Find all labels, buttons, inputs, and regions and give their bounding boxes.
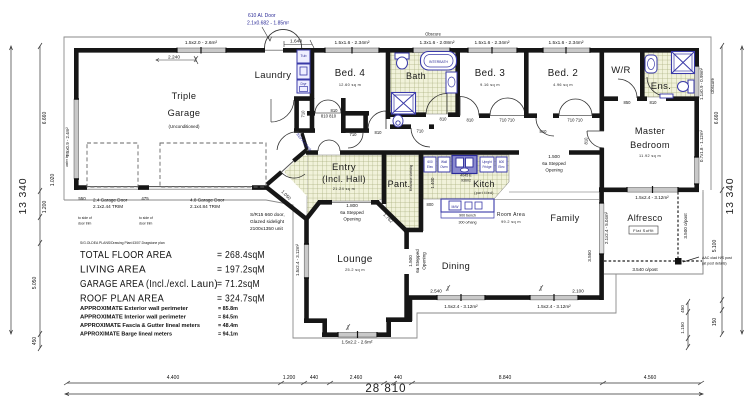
svg-text:Room Area: Room Area — [497, 212, 525, 218]
svg-text:150: 150 — [712, 318, 718, 327]
svg-text:TOTAL FLOOR AREA: TOTAL FLOOR AREA — [80, 250, 172, 261]
svg-text:2100x1350 unit: 2100x1350 unit — [250, 226, 283, 232]
svg-text:810 810: 810 810 — [321, 114, 337, 119]
svg-text:ROOF PLAN AREA: ROOF PLAN AREA — [80, 294, 164, 305]
svg-text:Tub: Tub — [300, 54, 306, 58]
svg-text:2.1x2.4 - 5.04m²: 2.1x2.4 - 5.04m² — [604, 211, 609, 244]
svg-text:GARAGE AREA: GARAGE AREA — [80, 279, 144, 290]
svg-text:1.5x1.6 - 2.34m²: 1.5x1.6 - 2.34m² — [335, 40, 370, 46]
svg-text:3.540 o/post: 3.540 o/post — [632, 267, 658, 272]
svg-text:M/W: M/W — [452, 205, 460, 209]
svg-text:Bed. 4: Bed. 4 — [335, 68, 366, 79]
svg-text:1.640: 1.640 — [290, 39, 302, 45]
svg-text:810: 810 — [375, 130, 383, 135]
svg-text:Laun): Laun) — [191, 279, 218, 290]
svg-text:(at post details): (at post details) — [702, 262, 727, 266]
svg-text:= 324.7sqM: = 324.7sqM — [217, 294, 265, 305]
svg-text:1.3x1.6 - 2.08m²: 1.3x1.6 - 2.08m² — [420, 40, 455, 46]
svg-text:2.540: 2.540 — [430, 289, 442, 294]
svg-text:440: 440 — [310, 375, 319, 381]
svg-text:2.4 Garage Door: 2.4 Garage Door — [93, 198, 128, 203]
svg-text:2.100: 2.100 — [572, 289, 584, 294]
svg-text:710: 710 — [417, 129, 425, 134]
svg-text:4.96 sq m: 4.96 sq m — [553, 83, 573, 87]
svg-text:13 340: 13 340 — [17, 178, 29, 215]
svg-text:4.560: 4.560 — [644, 375, 657, 381]
svg-text:93602: 93602 — [461, 179, 471, 183]
svg-text:9.16 sq m: 9.16 sq m — [480, 83, 500, 87]
svg-text:Glazed sidelight: Glazed sidelight — [250, 219, 285, 225]
svg-text:800: 800 — [427, 202, 435, 207]
svg-text:1.500: 1.500 — [408, 255, 413, 267]
svg-text:Obscure: Obscure — [710, 77, 715, 93]
svg-text:810: 810 — [467, 118, 475, 123]
svg-text:Garage: Garage — [168, 108, 201, 118]
svg-text:810: 810 — [650, 100, 658, 105]
svg-text:2.1x0.682 - 1.85m²: 2.1x0.682 - 1.85m² — [247, 21, 289, 27]
svg-text:APPROXIMATE Interior wall peri: APPROXIMATE Interior wall perimeter — [80, 315, 187, 321]
svg-text:to side of: to side of — [139, 216, 153, 220]
svg-text:900 bench: 900 bench — [459, 214, 476, 218]
svg-text:Family: Family — [550, 213, 579, 223]
svg-text:1.5x2.4 - 3.12m²: 1.5x2.4 - 3.12m² — [635, 195, 669, 200]
svg-text:600: 600 — [427, 160, 433, 164]
svg-text:440: 440 — [394, 375, 403, 381]
svg-text:(Incl./excl.: (Incl./excl. — [146, 279, 189, 290]
svg-text:Flat Soffit: Flat Soffit — [633, 228, 654, 233]
svg-text:LIVING AREA: LIVING AREA — [80, 265, 146, 276]
svg-text:550: 550 — [78, 196, 86, 201]
svg-text:Lounge: Lounge — [337, 254, 373, 265]
svg-text:2.1x2.44 TRIM: 2.1x2.44 TRIM — [93, 204, 123, 209]
svg-text:610 Al. Door: 610 Al. Door — [248, 13, 276, 19]
svg-text:Entry: Entry — [332, 162, 356, 173]
svg-text:Obscure: Obscure — [425, 32, 441, 37]
svg-text:2.240: 2.240 — [168, 55, 180, 61]
svg-text:S/G.OLDEA PLANS/Drawing Plan/4: S/G.OLDEA PLANS/Drawing Plan/43/07.Drags… — [80, 241, 165, 245]
svg-text:1.5x1.6 - 2.34m²: 1.5x1.6 - 2.34m² — [475, 40, 510, 46]
svg-text:= 84.5m: = 84.5m — [218, 315, 238, 321]
svg-text:= 71.2sqM: = 71.2sqM — [217, 279, 260, 290]
svg-text:Opening: Opening — [422, 252, 427, 270]
svg-text:2.1x4.84 TRIM: 2.1x4.84 TRIM — [190, 204, 220, 209]
svg-text:(part tiled): (part tiled) — [474, 191, 493, 195]
svg-text:8.840: 8.840 — [499, 375, 512, 381]
svg-text:13 340: 13 340 — [724, 178, 736, 215]
svg-text:Bed. 3: Bed. 3 — [475, 68, 506, 79]
svg-text:710 710: 710 710 — [567, 118, 583, 123]
svg-text:5.050: 5.050 — [32, 277, 38, 290]
svg-text:6.660: 6.660 — [714, 112, 720, 125]
svg-text:Pant.: Pant. — [388, 179, 411, 189]
svg-text:1.5x0.9 - 2.4m²: 1.5x0.9 - 2.4m² — [65, 127, 70, 157]
svg-text:= 197.2sqM: = 197.2sqM — [217, 265, 265, 276]
svg-text:1.5x2.2 - 2.6m²: 1.5x2.2 - 2.6m² — [342, 340, 373, 345]
svg-text:710: 710 — [301, 110, 306, 118]
svg-text:= 85.8m: = 85.8m — [218, 306, 238, 312]
svg-text:3.500 o/post: 3.500 o/post — [683, 213, 688, 239]
svg-text:1.020: 1.020 — [50, 174, 56, 187]
svg-text:28 810: 28 810 — [365, 383, 406, 395]
svg-text:Bedroom: Bedroom — [630, 140, 670, 150]
svg-text:710 710: 710 710 — [499, 118, 515, 123]
svg-text:1.5x1.6 - 2.34m²: 1.5x1.6 - 2.34m² — [549, 40, 584, 46]
svg-text:12.60 sq m: 12.60 sq m — [339, 83, 361, 87]
svg-text:4.8 Garage Door: 4.8 Garage Door — [190, 198, 225, 203]
svg-text:INTERBATH: INTERBATH — [429, 60, 449, 64]
svg-text:Master: Master — [635, 126, 665, 136]
svg-text:(Unconditioned): (Unconditioned) — [169, 124, 201, 129]
svg-text:850: 850 — [624, 100, 632, 105]
svg-text:APPROXIMATE Exterior wall peri: APPROXIMATE Exterior wall perimeter — [80, 306, 189, 312]
svg-text:300 o/hang: 300 o/hang — [459, 221, 477, 225]
svg-text:710: 710 — [350, 132, 358, 137]
svg-text:Opening: Opening — [545, 168, 563, 173]
svg-text:(Incl. Hall): (Incl. Hall) — [322, 174, 366, 184]
svg-text:0.7x1.8 - 1.12m²: 0.7x1.8 - 1.12m² — [699, 129, 704, 162]
svg-text:4045 E: 4045 E — [460, 174, 472, 178]
svg-text:6a Stepped: 6a Stepped — [542, 161, 566, 166]
svg-text:11.92 sq m: 11.92 sq m — [639, 154, 661, 158]
svg-text:5.100: 5.100 — [712, 240, 718, 253]
svg-text:Elec: Elec — [427, 165, 434, 169]
svg-text:Triple: Triple — [172, 91, 197, 101]
svg-text:475: 475 — [141, 196, 149, 201]
svg-text:6a Stepped: 6a Stepped — [340, 210, 364, 215]
svg-text:Bath: Bath — [406, 71, 426, 81]
svg-text:810: 810 — [540, 129, 548, 134]
svg-text:Wall: Wall — [441, 160, 447, 164]
svg-text:Opening: Opening — [343, 217, 361, 222]
svg-text:Kitch: Kitch — [473, 179, 495, 189]
svg-text:to side of: to side of — [78, 216, 92, 220]
svg-text:= 268.4sqM: = 268.4sqM — [217, 250, 265, 261]
svg-text:Uprght: Uprght — [482, 160, 492, 164]
svg-text:1.200: 1.200 — [283, 375, 296, 381]
svg-text:Melamine shelving: Melamine shelving — [409, 165, 413, 192]
svg-text:1.5x2.0 - 2.6m²: 1.5x2.0 - 2.6m² — [185, 40, 218, 46]
svg-text:810: 810 — [440, 117, 448, 122]
svg-text:Dining: Dining — [442, 261, 470, 271]
svg-text:1.400: 1.400 — [430, 177, 435, 189]
svg-text:6a Stepped: 6a Stepped — [415, 249, 420, 273]
svg-text:99.2 sq m: 99.2 sq m — [501, 220, 521, 224]
svg-text:Dryr: Dryr — [300, 82, 307, 86]
svg-text:Fridge: Fridge — [482, 165, 491, 169]
svg-text:= 94.1m: = 94.1m — [218, 332, 238, 338]
svg-text:1.800: 1.800 — [346, 203, 358, 208]
svg-text:450: 450 — [680, 305, 685, 313]
svg-text:1.500: 1.500 — [548, 154, 560, 159]
svg-text:3.550: 3.550 — [587, 250, 592, 262]
svg-text:water box: water box — [65, 153, 69, 167]
svg-text:810: 810 — [584, 137, 589, 145]
svg-text:AAC clad H/S post: AAC clad H/S post — [702, 256, 732, 260]
svg-text:Oven: Oven — [440, 165, 448, 169]
svg-text:APPROXIMATE Fascia & Gutter li: APPROXIMATE Fascia & Gutter lineal meter… — [80, 323, 200, 329]
svg-text:APPROXIMATE Barge lineal meter: APPROXIMATE Barge lineal meters — [80, 332, 172, 338]
svg-text:2.460: 2.460 — [350, 375, 363, 381]
svg-text:1.150: 1.150 — [680, 322, 685, 334]
svg-text:6.660: 6.660 — [42, 112, 48, 125]
svg-text:450: 450 — [32, 337, 38, 346]
svg-text:Alfresco: Alfresco — [627, 213, 662, 223]
svg-text:Ens.: Ens. — [651, 81, 671, 92]
svg-text:Elec: Elec — [498, 165, 505, 169]
svg-text:door trim: door trim — [139, 222, 153, 226]
svg-text:21.24 sq m: 21.24 sq m — [333, 187, 355, 191]
svg-text:810: 810 — [331, 108, 339, 113]
svg-text:600: 600 — [499, 160, 505, 164]
svg-text:1.5x2.4 - 3.12m²: 1.5x2.4 - 3.12m² — [537, 304, 571, 309]
svg-text:1.5x2.4 - 3.12m²: 1.5x2.4 - 3.12m² — [295, 243, 300, 276]
svg-text:W/R: W/R — [611, 65, 631, 76]
svg-text:4.400: 4.400 — [167, 375, 180, 381]
svg-text:25.2 sq m: 25.2 sq m — [345, 268, 365, 272]
svg-text:1.1x0.9 - 0.99m²: 1.1x0.9 - 0.99m² — [699, 67, 704, 100]
svg-text:1.200: 1.200 — [42, 201, 48, 214]
svg-text:Laundry: Laundry — [255, 70, 292, 81]
svg-text:= 48.4m: = 48.4m — [218, 323, 238, 329]
svg-text:door trim: door trim — [78, 222, 92, 226]
svg-text:Bed. 2: Bed. 2 — [548, 68, 578, 79]
svg-text:S/R15 660 door,: S/R15 660 door, — [250, 212, 285, 218]
svg-text:1.5x2.4 - 3.12m²: 1.5x2.4 - 3.12m² — [444, 304, 478, 309]
